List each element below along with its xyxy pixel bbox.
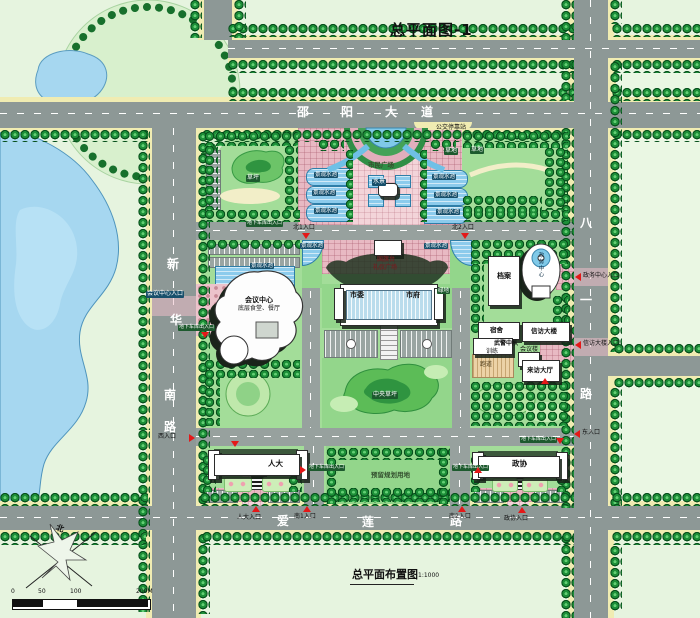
tree-row	[612, 24, 700, 37]
government-wing	[334, 288, 344, 320]
road-east-branch	[608, 356, 700, 376]
road-name-char: 一	[580, 291, 592, 308]
conference-entrance-label: 会议中心入口	[146, 291, 184, 298]
east-entrance-label: 东入口	[582, 430, 600, 437]
garage-entrance-label: 地下车库出入口	[452, 465, 489, 471]
road-centerline	[196, 230, 574, 231]
north2-entrance-label: 北2入口	[452, 225, 474, 232]
landscape-pool-label: 景观水池	[434, 192, 458, 198]
tree-row	[612, 130, 700, 142]
parking-spot-marker	[346, 339, 356, 349]
tree-row	[234, 0, 246, 38]
entrance-marker	[303, 506, 311, 512]
site-plan-canvas: 总平面图-1 邵 阳 大 道 公交停靠站 新 华 南 路 八 一 路 爱 莲 路…	[0, 0, 700, 618]
service-center-entrance-label: 政务中心入口	[583, 273, 619, 280]
citizens-plaza-label: 市民广场	[368, 162, 394, 169]
tree-row	[0, 532, 146, 545]
scale-bar-segment	[77, 600, 148, 607]
petition-building-label: 信访大楼	[531, 328, 557, 335]
tree-grove	[419, 150, 427, 222]
landscape-pool-label: 景观水池	[424, 243, 448, 249]
grass-label: 草地	[470, 147, 484, 154]
road-name-char: 路	[580, 385, 592, 402]
ceremony-plaza-label: 礼仪广场	[373, 265, 397, 272]
bus-stop-label: 公交停靠站	[436, 125, 466, 132]
road-xinhua	[152, 128, 196, 618]
garage-marker	[474, 467, 482, 473]
central-walkway	[380, 324, 398, 360]
water-feature-label: 水景	[372, 179, 386, 186]
caption-underline	[350, 584, 414, 585]
service-center-label: 政务中心	[537, 252, 543, 278]
tree-grove	[318, 140, 344, 151]
tree-row	[202, 532, 574, 545]
tree-grove	[326, 448, 450, 460]
landscape-pool-label: 景观水池	[314, 208, 338, 214]
landscape-pool-label: 景观水池	[300, 243, 324, 249]
tree-row	[0, 493, 148, 506]
parterre	[492, 478, 518, 492]
tree-row	[228, 60, 574, 73]
flag-platform-label: 国旗台	[377, 257, 395, 264]
parterre	[522, 478, 548, 492]
scale-bar-segment	[13, 600, 43, 607]
tree-grove	[204, 132, 298, 146]
tree-grove	[544, 148, 568, 210]
archives-label: 档案	[497, 272, 511, 280]
cppcc-entrance-label: 政协入口	[504, 516, 528, 523]
reserved-land-label: 预留规划用地	[371, 472, 410, 479]
garage-marker	[300, 466, 306, 474]
petition-entrance-label: 信访大楼入口	[583, 341, 619, 348]
south1-entrance-label: 南1入口	[294, 514, 316, 521]
central-lawn-label: 中央草坪	[372, 392, 398, 399]
road-ailian	[0, 506, 700, 530]
tree-row	[610, 0, 622, 24]
committee-label: 市委	[350, 291, 364, 299]
training-ground	[472, 354, 514, 378]
tree-row	[614, 378, 700, 389]
road-centerline	[0, 517, 700, 518]
npc-label: 人大	[268, 460, 283, 469]
road-internal-south	[196, 428, 574, 446]
dormitory-label: 宿舍	[490, 327, 503, 334]
sheet-scale: 1:1000	[418, 573, 439, 580]
garage-entrance-label: 地下车库出入口	[520, 437, 557, 443]
sheet-caption: 总平面布置图	[352, 569, 418, 582]
green-space-label: 绿地	[437, 288, 450, 294]
garage-marker	[556, 438, 564, 444]
parterre	[224, 477, 252, 492]
track-label: 跑道	[480, 362, 492, 369]
landscape-pool-label: 景观水池	[312, 190, 336, 196]
meeting-building-label: 会议楼	[520, 347, 538, 354]
tree-grove	[345, 150, 353, 222]
garage-entrance-label: 地下车库出入口	[246, 221, 283, 227]
tree-grove	[204, 360, 300, 378]
entrance-marker	[575, 273, 581, 281]
south2-entrance-label: 南2入口	[449, 514, 471, 521]
tree-grove	[284, 146, 298, 210]
tree-row	[0, 130, 148, 142]
entrance-marker	[252, 506, 260, 512]
tree-row	[561, 60, 574, 100]
entrance-marker	[575, 341, 581, 349]
entrance-marker	[541, 378, 549, 384]
scale-tick: 100	[70, 589, 81, 596]
road-name-char: 新	[167, 255, 179, 272]
landscape-pool-label: 景观水池	[436, 209, 460, 215]
road-name-char: 莲	[362, 513, 374, 530]
scale-tick: 0	[11, 589, 15, 596]
tree-row	[138, 430, 150, 612]
police-label: 武警中队	[494, 341, 518, 348]
tree-grove	[470, 240, 570, 264]
road-centerline	[228, 48, 700, 49]
west-entrance-label: 西入口	[158, 434, 176, 441]
tree-grove	[204, 146, 218, 210]
tree-row	[198, 534, 210, 614]
north1-entrance-label: 北1入口	[293, 225, 315, 232]
entrance-marker	[458, 506, 466, 512]
entrance-marker	[302, 233, 310, 239]
tree-row	[190, 0, 202, 38]
road-centerline	[590, 0, 591, 618]
flag-platform	[374, 240, 402, 256]
tree-row	[614, 344, 700, 355]
water-feature-basin	[395, 194, 411, 207]
npc-entrance-label: 人大入口	[237, 515, 261, 522]
tree-grove	[204, 378, 220, 426]
cppcc-label: 政协	[512, 460, 527, 469]
scale-tick: 50	[38, 589, 46, 596]
road-top	[228, 40, 700, 58]
garage-entrance-label: 地下车库出入口	[178, 325, 215, 331]
tree-grove	[326, 448, 338, 504]
road-name-char: 阳	[341, 103, 353, 120]
entrance-marker	[231, 441, 239, 447]
visitor-hall-label: 来访大厅	[527, 367, 553, 374]
road-name-char: 八	[580, 214, 592, 231]
tree-row	[612, 493, 700, 506]
tree-grove	[438, 448, 450, 504]
training-label: 训练	[486, 349, 498, 356]
road-name-char: 大	[385, 103, 397, 120]
tree-row	[612, 60, 700, 73]
tree-row	[561, 0, 574, 40]
tree-row	[610, 546, 622, 612]
tree-row	[610, 62, 622, 352]
garage-entrance-label: 地下车库出入口	[308, 465, 345, 471]
garage-marker	[201, 332, 209, 338]
landscape-pool-label: 景观水池	[314, 172, 338, 178]
tree-row	[610, 388, 622, 506]
tree-row	[228, 88, 574, 101]
tree-grove	[206, 240, 300, 250]
lake-highlight	[14, 207, 77, 330]
lake	[0, 126, 119, 506]
tree-grove	[462, 196, 542, 212]
road-centerline	[173, 128, 174, 618]
road-name-char: 爱	[277, 512, 289, 529]
road-name-char: 南	[164, 386, 176, 403]
grass-label: 草地	[444, 148, 458, 155]
tree-row	[612, 532, 700, 545]
scale-tick: 200M	[136, 589, 153, 596]
tree-row	[612, 88, 700, 101]
page-title: 总平面图-1	[390, 22, 473, 39]
entrance-marker	[461, 233, 469, 239]
lawn-label: 草坪	[246, 175, 260, 182]
npc-building	[214, 454, 300, 476]
tree-row	[561, 534, 574, 618]
road-name-char: 邵	[297, 103, 309, 120]
tree-row	[138, 130, 150, 430]
entrance-marker	[574, 430, 580, 438]
tree-grove	[326, 488, 450, 502]
road-centerline	[196, 436, 574, 437]
entrance-marker	[518, 507, 526, 513]
landscape-pool-label: 景观水池	[432, 174, 456, 180]
conference-pool-label: 景观水池	[250, 263, 274, 269]
tree-grove	[470, 382, 568, 426]
canteen-label: 底层食堂、餐厅	[238, 306, 280, 313]
parking-spot-marker	[422, 339, 432, 349]
government-label: 市府	[406, 291, 420, 299]
entrance-marker	[189, 434, 195, 442]
conference-center-label: 会议中心	[245, 296, 273, 304]
archives-building	[488, 256, 520, 306]
road-name-char: 道	[421, 103, 433, 120]
